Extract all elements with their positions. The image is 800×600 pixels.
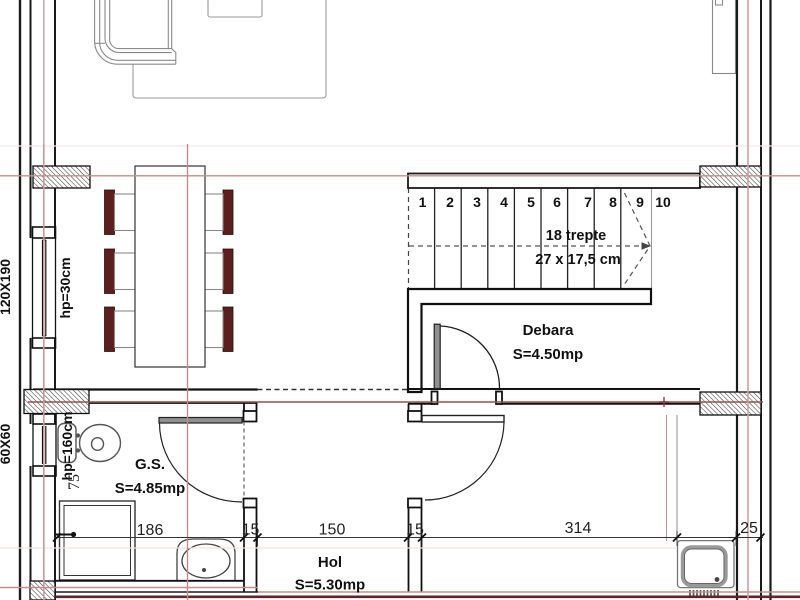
svg-text:G.S.: G.S.: [135, 456, 165, 473]
svg-text:hp=160cm: hp=160cm: [59, 412, 75, 481]
svg-text:25: 25: [740, 520, 758, 537]
svg-text:18 trepte: 18 trepte: [546, 228, 606, 244]
svg-text:150: 150: [319, 522, 346, 539]
svg-text:Hol: Hol: [318, 554, 342, 571]
svg-text:27 x 17,5 cm: 27 x 17,5 cm: [535, 252, 620, 268]
svg-text:186: 186: [137, 522, 164, 539]
svg-text:6: 6: [553, 194, 561, 210]
svg-text:7: 7: [584, 194, 592, 210]
svg-text:Debara: Debara: [523, 322, 575, 339]
svg-text:314: 314: [565, 520, 592, 537]
svg-text:8: 8: [609, 194, 617, 210]
svg-text:15: 15: [242, 522, 260, 539]
svg-text:S=4.85mp: S=4.85mp: [115, 480, 185, 497]
svg-text:3: 3: [473, 194, 481, 210]
svg-text:2: 2: [446, 194, 454, 210]
svg-text:75: 75: [66, 474, 83, 490]
svg-text:9: 9: [636, 194, 644, 210]
svg-text:15: 15: [406, 522, 424, 539]
svg-text:1: 1: [419, 194, 427, 210]
svg-text:120X190: 120X190: [0, 259, 13, 315]
svg-text:S=4.50mp: S=4.50mp: [513, 346, 583, 363]
svg-text:10: 10: [655, 194, 671, 210]
svg-text:4: 4: [500, 194, 508, 210]
svg-text:S=5.30mp: S=5.30mp: [295, 577, 365, 594]
svg-text:hp=30cm: hp=30cm: [57, 257, 73, 318]
svg-text:5: 5: [527, 194, 535, 210]
svg-text:60X60: 60X60: [0, 424, 13, 465]
